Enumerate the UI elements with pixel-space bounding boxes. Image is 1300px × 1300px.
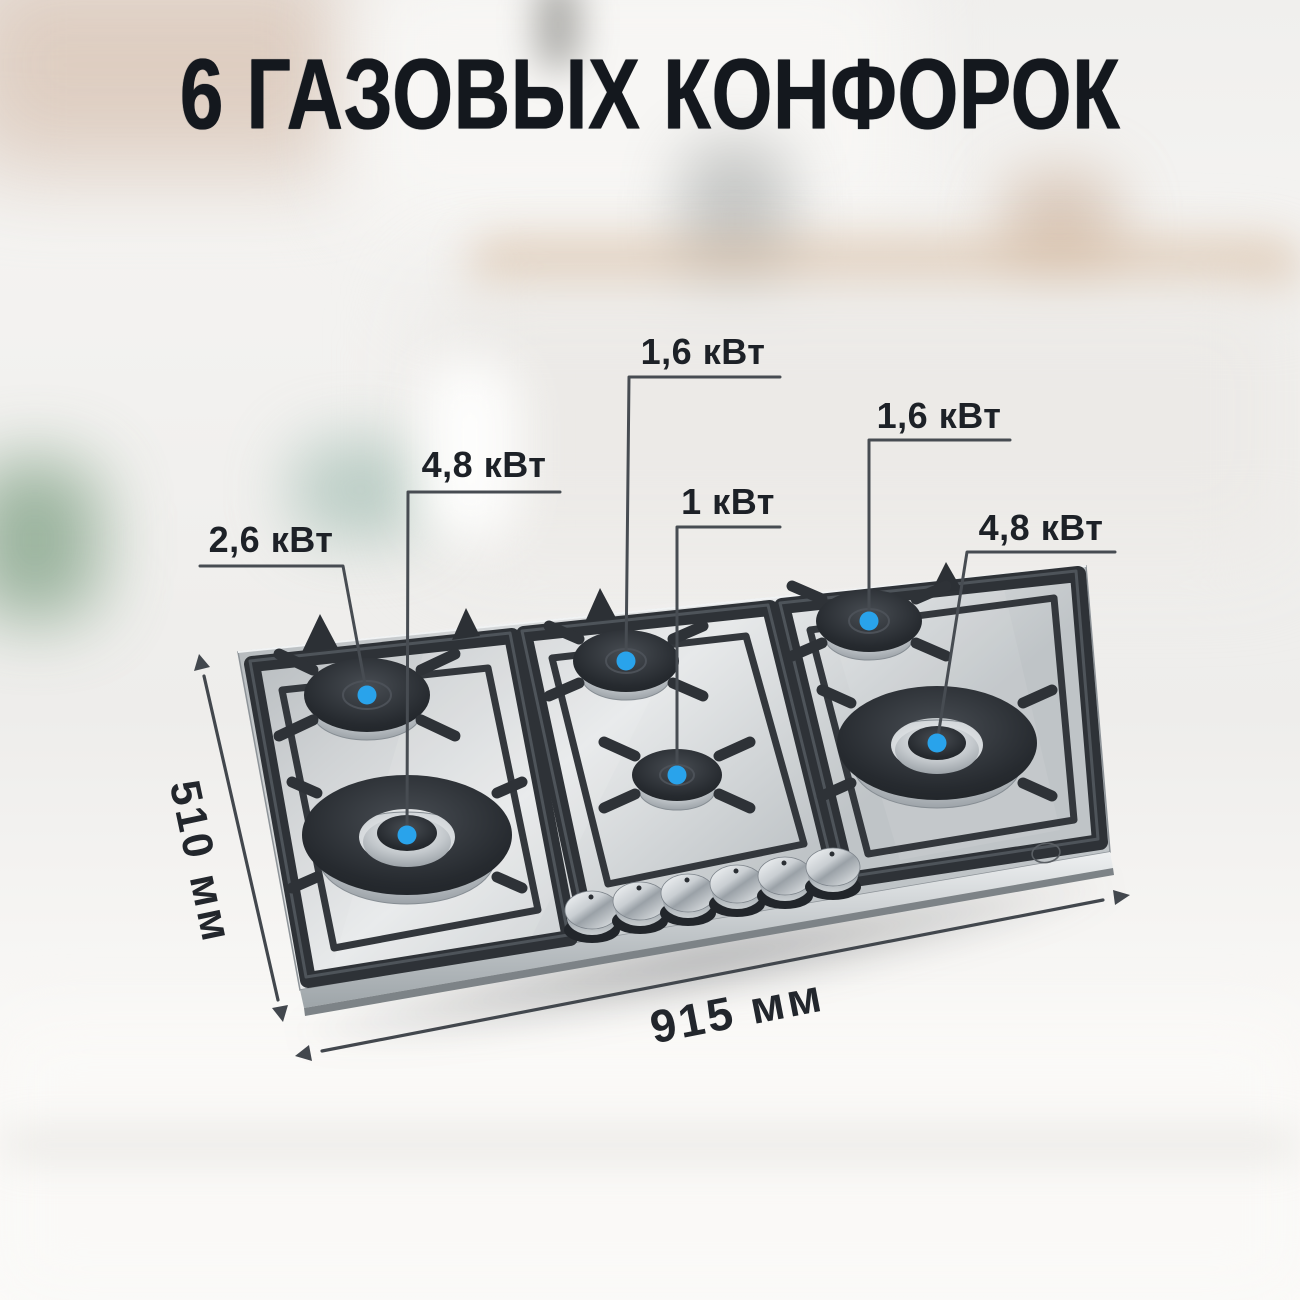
burner-marker-dot [668, 766, 687, 785]
burner-power-label-center-front: 1 кВт [681, 481, 775, 523]
burner-marker-dot [617, 652, 636, 671]
knob-1 [564, 891, 620, 943]
knob-indicator-dot [589, 895, 594, 900]
grate-horn [585, 588, 616, 622]
knob-indicator-dot [782, 861, 787, 866]
arrowhead-right-icon [1113, 890, 1130, 905]
burner-power-label-left-back: 2,6 кВт [209, 519, 334, 561]
knob-indicator-dot [830, 852, 835, 857]
burner-marker-dot [398, 826, 417, 845]
burner-marker-dot [860, 612, 879, 631]
burner-marker-dot [928, 734, 947, 753]
arrowhead-down-icon [272, 1005, 288, 1022]
burner-power-label-center-back: 1,6 кВт [641, 331, 766, 373]
burner-power-label-left-front-wok: 4,8 кВт [422, 444, 547, 486]
knob-5 [757, 857, 813, 909]
knob-4 [709, 865, 765, 917]
knob-2 [612, 882, 668, 934]
knob-3 [660, 874, 716, 926]
product-infographic: 6 ГАЗОВЫХ КОНФОРОК 2,6 кВт 4,8 кВт 1,6 к… [0, 0, 1300, 1300]
burner-power-label-right-front-wok: 4,8 кВт [979, 507, 1104, 549]
burner-marker-dot [358, 686, 377, 705]
knob-indicator-dot [637, 886, 642, 891]
arrowhead-up-icon [194, 654, 210, 671]
knob-indicator-dot [685, 878, 690, 883]
knob-6 [805, 848, 861, 900]
knob-indicator-dot [734, 869, 739, 874]
arrowhead-left-icon [295, 1045, 312, 1061]
cooktop-scene [0, 0, 1300, 1300]
page-title: 6 ГАЗОВЫХ КОНФОРОК [180, 38, 1121, 153]
grate-horn [452, 608, 480, 640]
burner-power-label-right-back: 1,6 кВт [877, 395, 1002, 437]
grate-horn [302, 614, 338, 652]
